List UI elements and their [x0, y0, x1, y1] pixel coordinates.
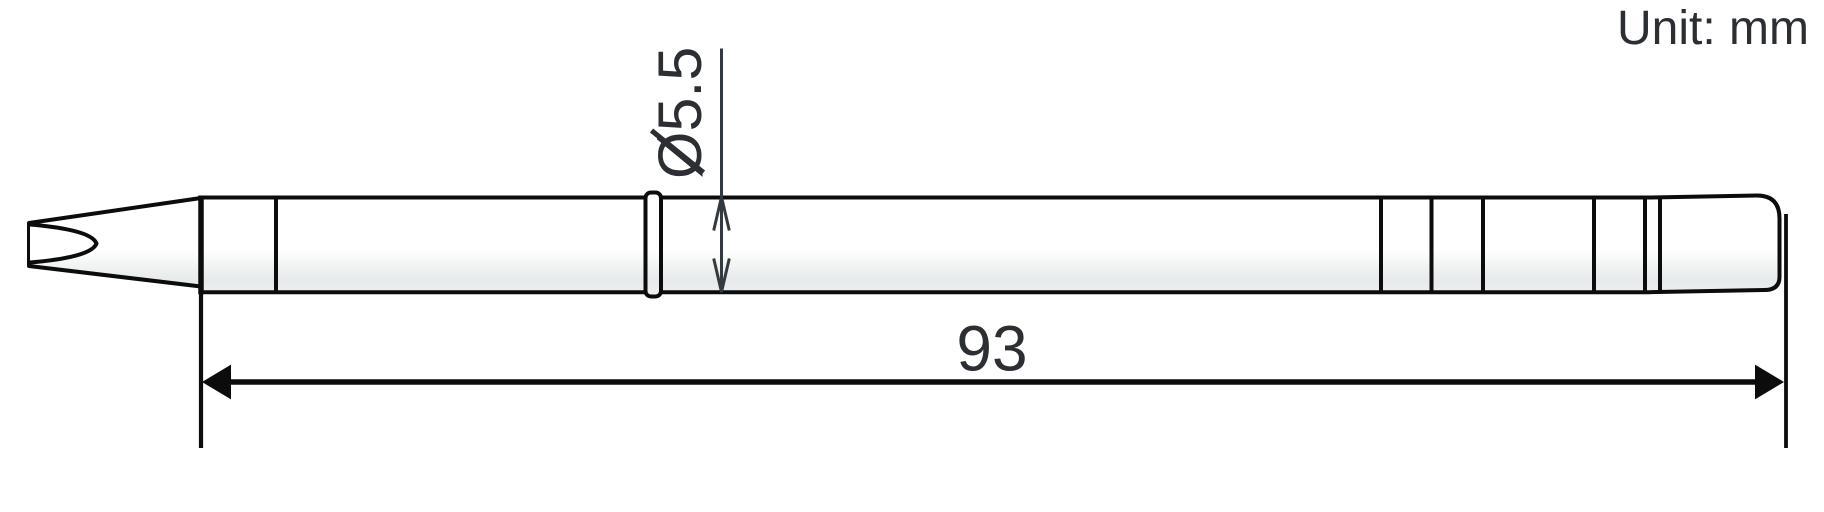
- svg-text:Ø5.5: Ø5.5: [646, 47, 714, 179]
- svg-text:93: 93: [956, 313, 1027, 385]
- svg-text:Unit: mm: Unit: mm: [1617, 2, 1809, 55]
